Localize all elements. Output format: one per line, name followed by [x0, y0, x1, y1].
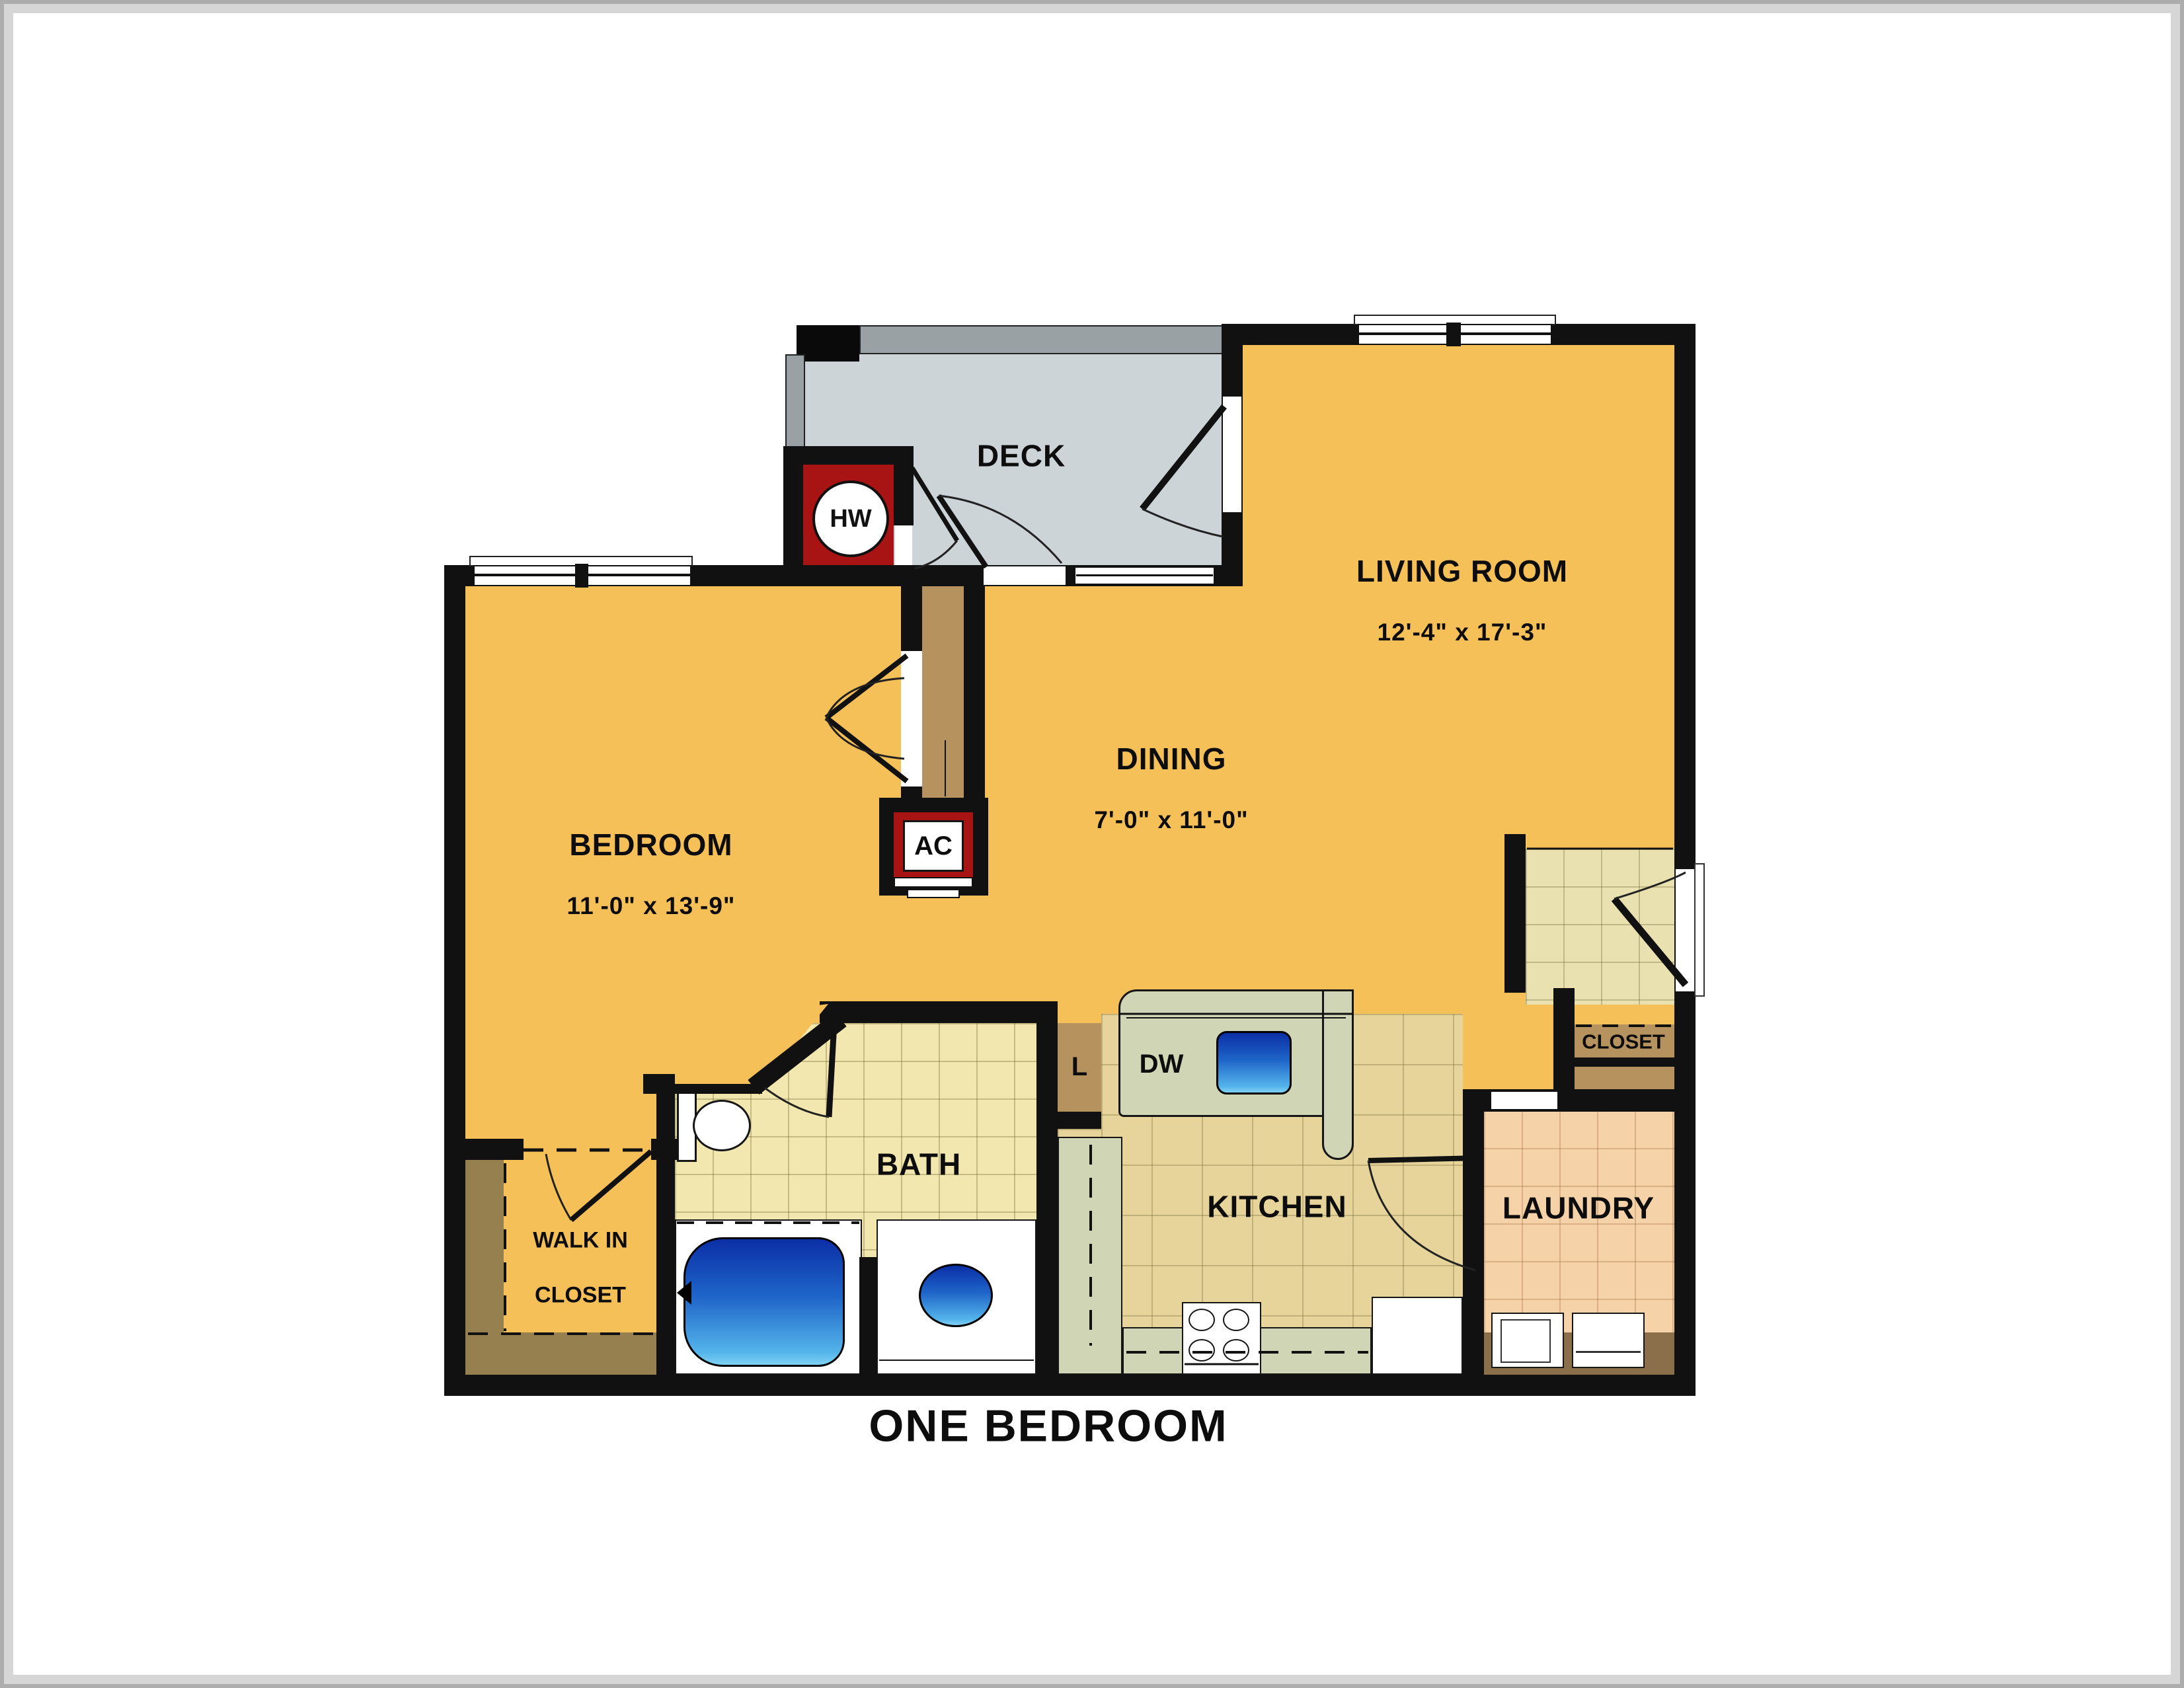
- label-deck: DECK: [977, 437, 1066, 475]
- label-kitchen: KITCHEN: [1207, 1188, 1346, 1226]
- bedroom-name: BEDROOM: [567, 826, 736, 864]
- entry-door-arc: [1614, 872, 1686, 899]
- label-bedroom: BEDROOM 11'-0" x 13'-9": [567, 800, 736, 948]
- tub-drain-arrow: [677, 1281, 691, 1305]
- bath-door-arc: [765, 1088, 829, 1117]
- bedroom-closet-door-leaf-2: [826, 718, 907, 781]
- label-dw: DW: [1140, 1048, 1184, 1081]
- label-dining: DINING 7'-0" x 11'-0": [1094, 714, 1248, 862]
- deck-door-leaf: [939, 496, 986, 567]
- entry-door-leaf: [1614, 899, 1686, 985]
- wic-line2: CLOSET: [533, 1281, 628, 1309]
- floor-plan-page: HW: [0, 0, 2184, 1688]
- deck-door-arc: [939, 496, 1062, 563]
- deck-living-door-leaf: [1142, 406, 1224, 509]
- bedroom-closet-door-leaf-1: [826, 656, 907, 718]
- bedroom-dims: 11'-0" x 13'-9": [567, 891, 736, 921]
- wic-line1: WALK IN: [533, 1227, 628, 1255]
- label-bath: BATH: [877, 1145, 961, 1184]
- label-walk-in-closet: WALK IN CLOSET: [533, 1200, 628, 1336]
- label-entry-closet: CLOSET: [1582, 1030, 1665, 1055]
- label-living-room: LIVING ROOM 12'-4" x 17'-3": [1356, 526, 1568, 674]
- dining-dims: 7'-0" x 11'-0": [1094, 805, 1248, 835]
- living-room-dims: 12'-4" x 17'-3": [1356, 617, 1568, 648]
- label-ac: AC: [914, 829, 953, 863]
- hw-door-leaf: [912, 468, 957, 541]
- plan-title: ONE BEDROOM: [869, 1399, 1228, 1455]
- hw-door-arc: [915, 541, 957, 568]
- label-linen: L: [1072, 1050, 1087, 1083]
- kitchen-door-arc: [1368, 1161, 1475, 1270]
- dining-name: DINING: [1094, 740, 1248, 779]
- kitchen-door-leaf: [1368, 1158, 1478, 1161]
- deck-living-door-arc: [1142, 509, 1223, 537]
- living-room-name: LIVING ROOM: [1356, 553, 1568, 591]
- label-laundry: LAUNDRY: [1502, 1189, 1655, 1227]
